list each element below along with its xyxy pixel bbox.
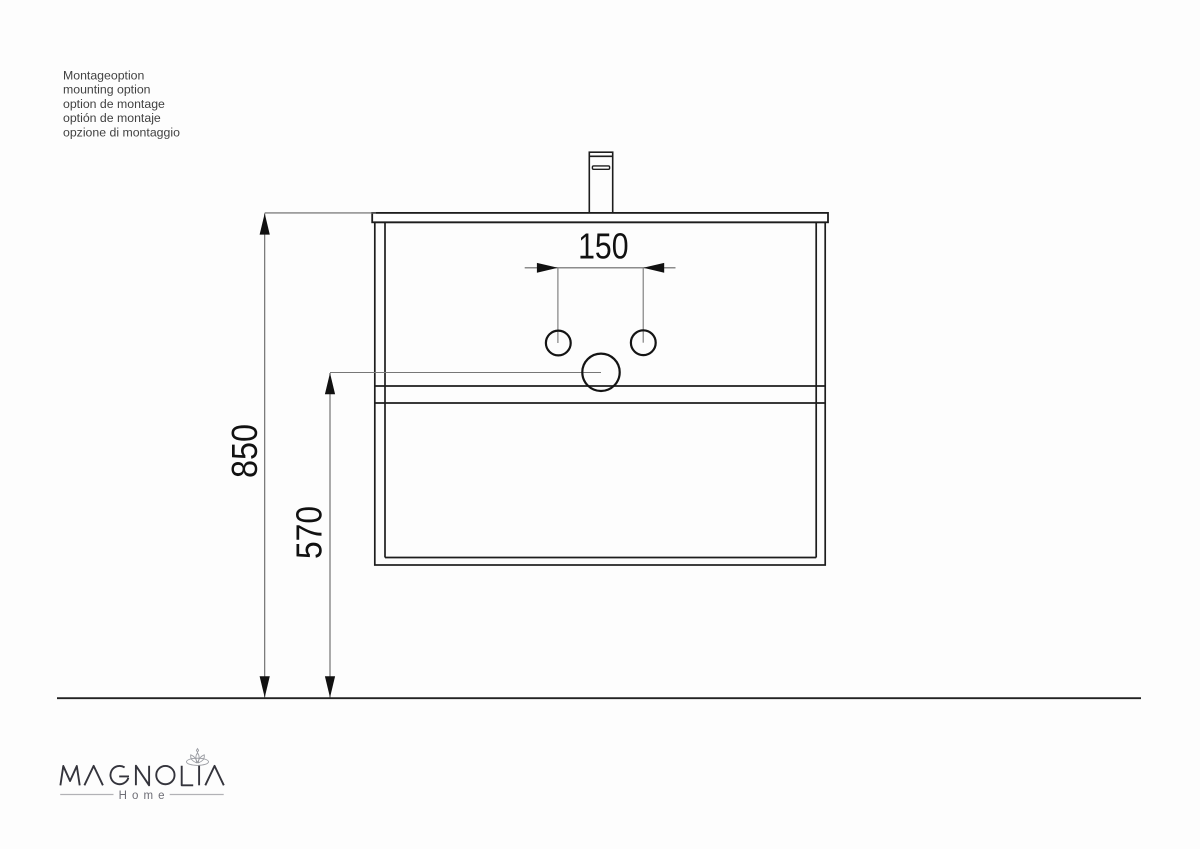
svg-text:150: 150 <box>578 226 629 267</box>
svg-text:opzione di montaggio: opzione di montaggio <box>63 125 180 139</box>
svg-text:570: 570 <box>289 506 330 559</box>
svg-text:mounting option: mounting option <box>63 83 151 97</box>
svg-text:Montageoption: Montageoption <box>63 69 145 83</box>
svg-text:option de montage: option de montage <box>63 97 165 111</box>
svg-text:optión de montaje: optión de montaje <box>63 111 161 125</box>
svg-text:850: 850 <box>224 424 265 478</box>
svg-text:Home: Home <box>119 790 170 802</box>
